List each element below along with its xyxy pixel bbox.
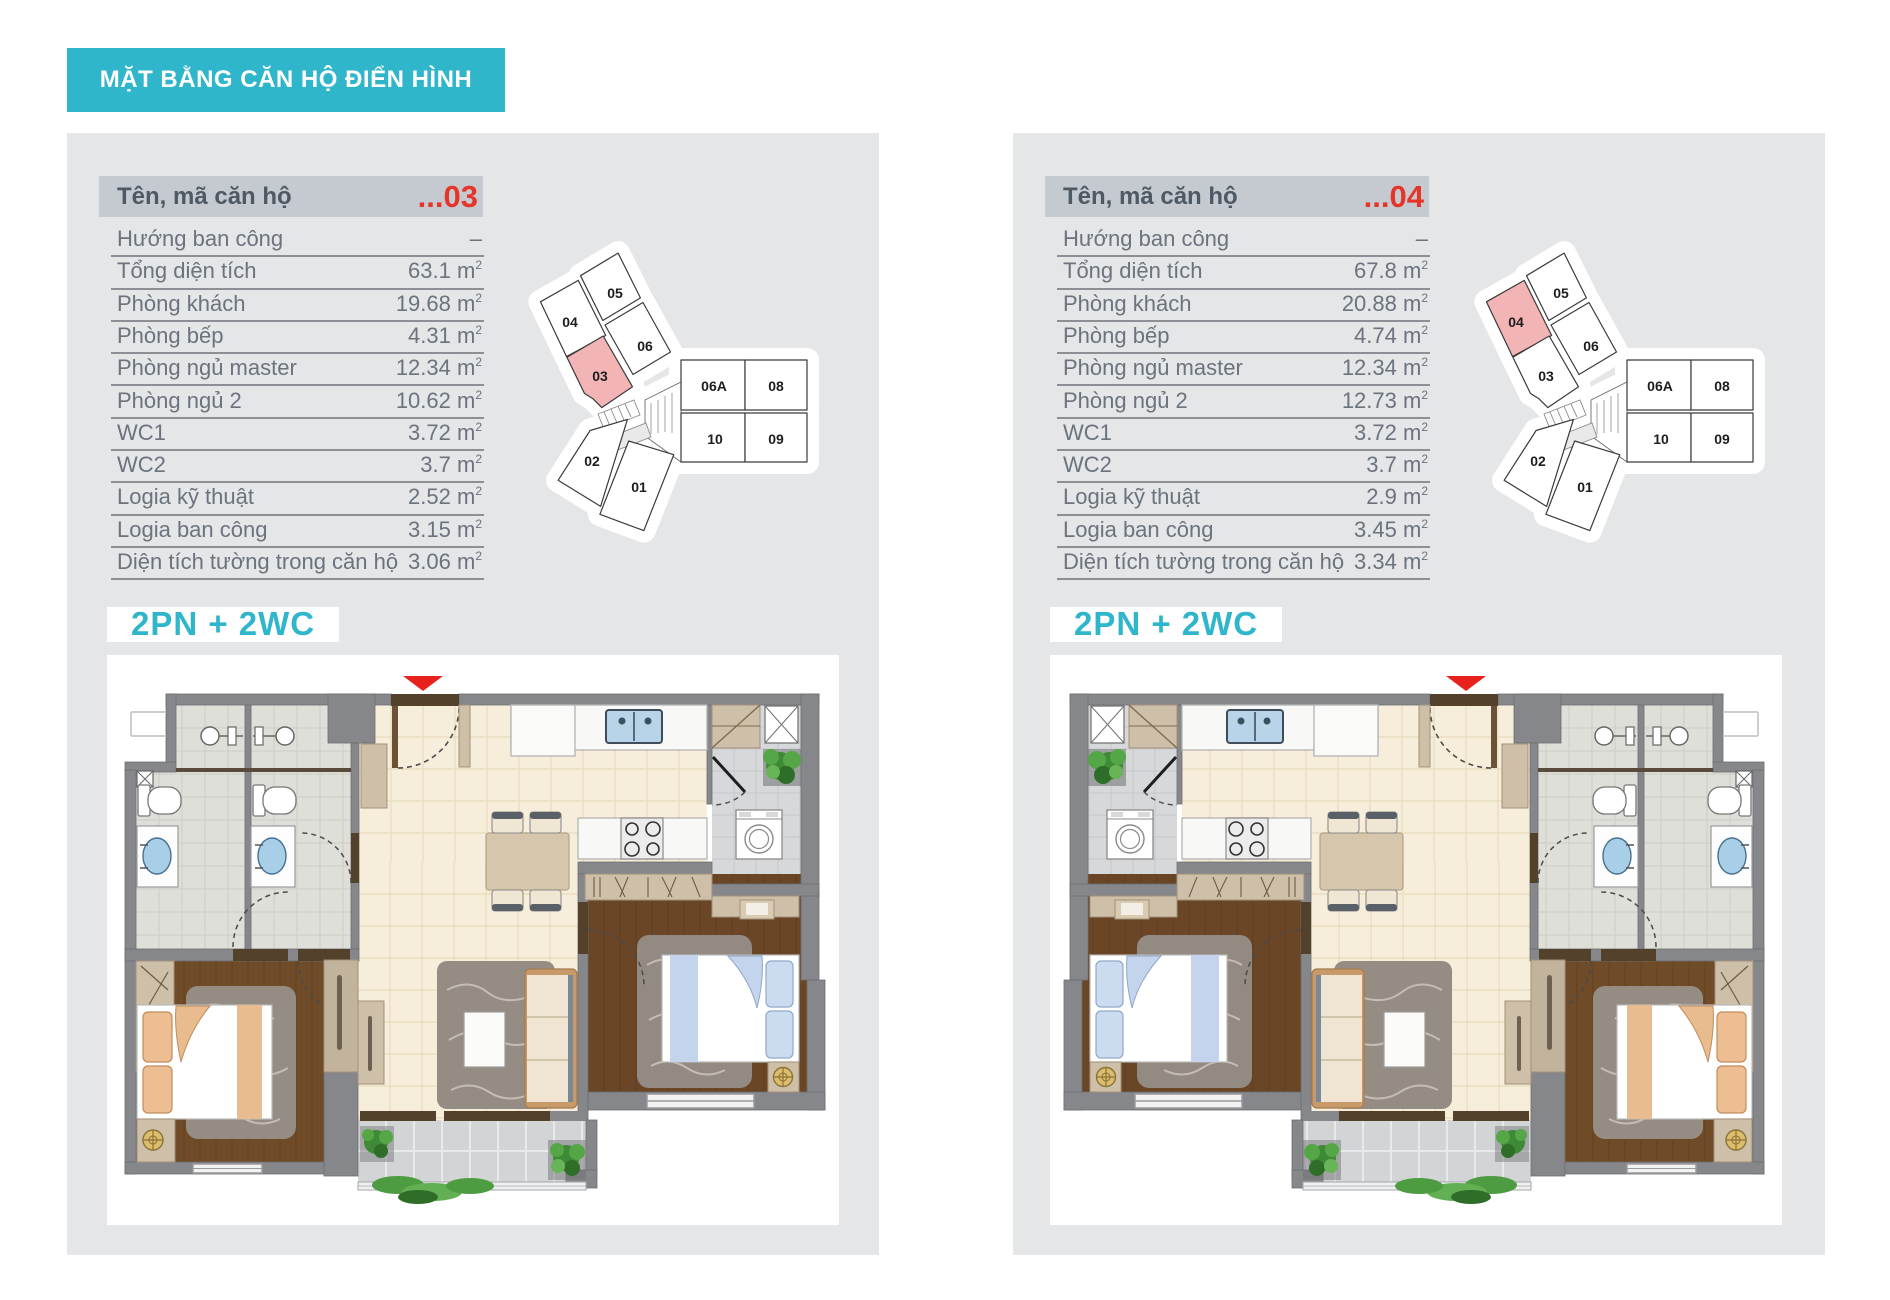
svg-text:08: 08: [768, 378, 784, 394]
svg-text:04: 04: [1508, 314, 1524, 330]
svg-text:05: 05: [607, 285, 623, 301]
svg-text:03: 03: [592, 368, 608, 384]
svg-text:02: 02: [1530, 453, 1546, 469]
svg-text:06A: 06A: [701, 378, 727, 394]
svg-text:01: 01: [631, 479, 647, 495]
svg-text:02: 02: [584, 453, 600, 469]
svg-text:08: 08: [1714, 378, 1730, 394]
svg-text:01: 01: [1577, 479, 1593, 495]
svg-text:10: 10: [707, 431, 723, 447]
svg-text:03: 03: [1538, 368, 1554, 384]
svg-text:06: 06: [1583, 338, 1599, 354]
svg-text:09: 09: [1714, 431, 1730, 447]
svg-text:06A: 06A: [1647, 378, 1673, 394]
svg-text:10: 10: [1653, 431, 1669, 447]
svg-text:06: 06: [637, 338, 653, 354]
svg-text:09: 09: [768, 431, 784, 447]
svg-text:04: 04: [562, 314, 578, 330]
svg-text:05: 05: [1553, 285, 1569, 301]
